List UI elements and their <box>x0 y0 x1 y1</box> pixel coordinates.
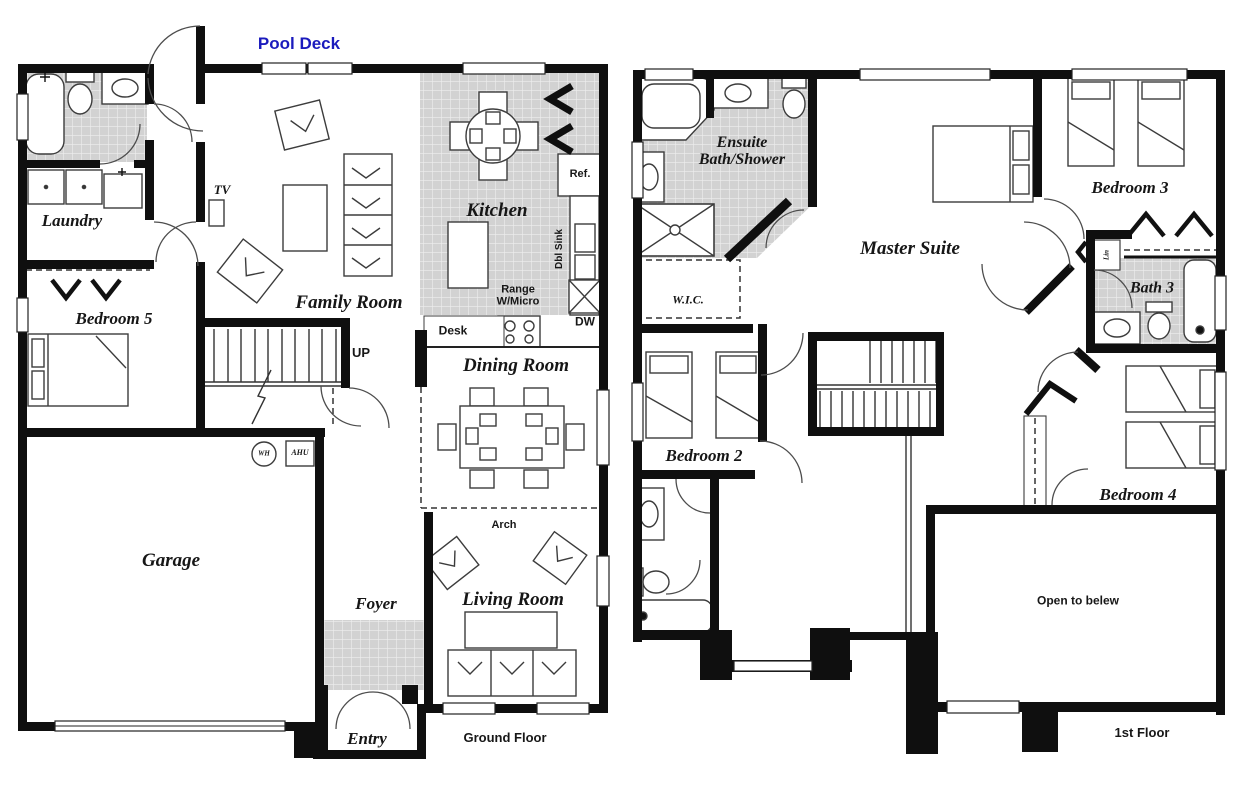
room-label-bedroom5: Bedroom 5 <box>76 310 153 328</box>
room-label-family-room: Family Room <box>295 293 402 313</box>
dishwasher-label: DW <box>575 316 595 329</box>
dining-table-set <box>438 388 584 488</box>
room-label-garage: Garage <box>142 551 200 571</box>
room-label-bedroom2: Bedroom 2 <box>666 447 743 465</box>
range-label: Range W/Micro <box>488 284 548 307</box>
room-label-ensuite: Ensuite Bath/Shower <box>680 135 804 169</box>
bedroom3-beds <box>1068 78 1184 166</box>
living-sofa <box>448 650 576 696</box>
shower <box>636 204 714 256</box>
room-label-bedroom3: Bedroom 3 <box>1092 179 1169 197</box>
open-to-below-label: Open to belew <box>1037 595 1119 608</box>
ensuite-vanity-top <box>712 78 768 108</box>
water-heater-label: WH <box>258 450 270 457</box>
pool-deck-label: Pool Deck <box>258 35 340 53</box>
bath3-tub <box>1184 260 1216 342</box>
bedroom5-bed <box>28 334 128 406</box>
stairs-up-label: UP <box>352 346 370 360</box>
living-armchair-1 <box>425 537 479 590</box>
room-label-bath3: Bath 3 <box>1130 281 1174 298</box>
air-handler-label: AHU <box>291 449 308 457</box>
toilet <box>66 72 94 114</box>
loft-railing <box>906 436 911 632</box>
linen-label: Lin <box>1103 250 1110 260</box>
bath3-toilet <box>1146 302 1172 339</box>
room-label-laundry: Laundry <box>42 212 102 230</box>
kitchen-island <box>448 222 488 288</box>
master-bed <box>933 126 1033 202</box>
closet-rods <box>52 214 1212 298</box>
room-label-master-suite: Master Suite <box>860 239 960 259</box>
room-label-living-room: Living Room <box>462 590 564 610</box>
stairs-first-floor <box>817 341 944 427</box>
room-label-kitchen: Kitchen <box>466 201 527 221</box>
living-armchair-2 <box>533 532 587 585</box>
bedroom2-beds <box>646 352 760 438</box>
living-table <box>465 612 557 648</box>
first-floor-tiles <box>636 76 1216 344</box>
family-armchair-2 <box>217 239 282 303</box>
desk-label: Desk <box>439 325 468 338</box>
family-sofa <box>344 154 392 276</box>
bathtub <box>26 72 64 154</box>
washer <box>28 170 64 204</box>
bedroom4-bifold-door <box>1026 384 1076 414</box>
family-coffee-table <box>283 185 327 251</box>
room-label-wic: W.I.C. <box>672 294 703 307</box>
bedroom4-beds <box>1126 366 1218 468</box>
floor-plan-canvas: Pool Deck Laundry TV Bedroom 5 Family Ro… <box>0 0 1245 800</box>
stairs-up-ground <box>205 329 348 424</box>
room-label-dining-room: Dining Room <box>463 356 569 376</box>
dbl-sink-label: Dbl Sink <box>555 229 566 269</box>
bath3-sink <box>1094 312 1140 344</box>
arch-label: Arch <box>491 520 516 532</box>
laundry-sink <box>104 168 142 208</box>
room-label-foyer: Foyer <box>355 595 397 613</box>
ground-floor-label: Ground Floor <box>463 731 546 745</box>
refrigerator-label: Ref. <box>570 169 591 181</box>
tv <box>209 200 224 226</box>
room-label-entry: Entry <box>347 730 387 748</box>
hall-bath-tub <box>634 600 712 632</box>
dryer <box>66 170 102 204</box>
tv-label: TV <box>214 183 231 197</box>
floor-plan-drawing <box>0 0 1245 800</box>
ensuite-toilet <box>782 78 806 118</box>
bathroom-sink <box>102 72 148 104</box>
room-label-bedroom4: Bedroom 4 <box>1100 486 1177 504</box>
dishwasher <box>569 280 600 313</box>
family-armchair-1 <box>275 100 329 150</box>
first-floor-label: 1st Floor <box>1115 726 1170 740</box>
